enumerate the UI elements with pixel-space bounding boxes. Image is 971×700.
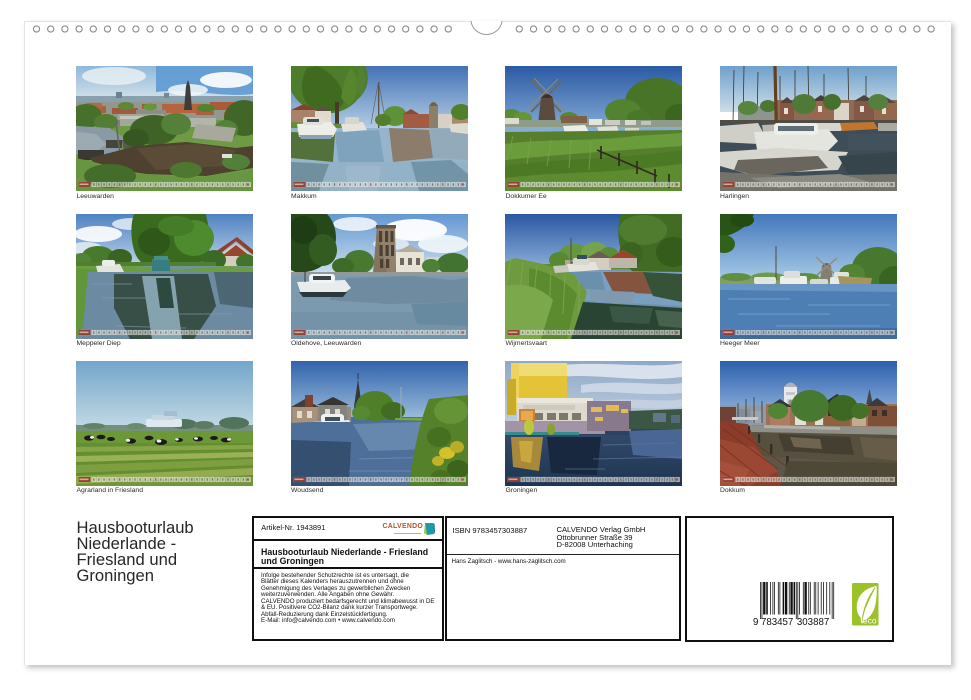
svg-text:eco: eco — [863, 615, 877, 625]
